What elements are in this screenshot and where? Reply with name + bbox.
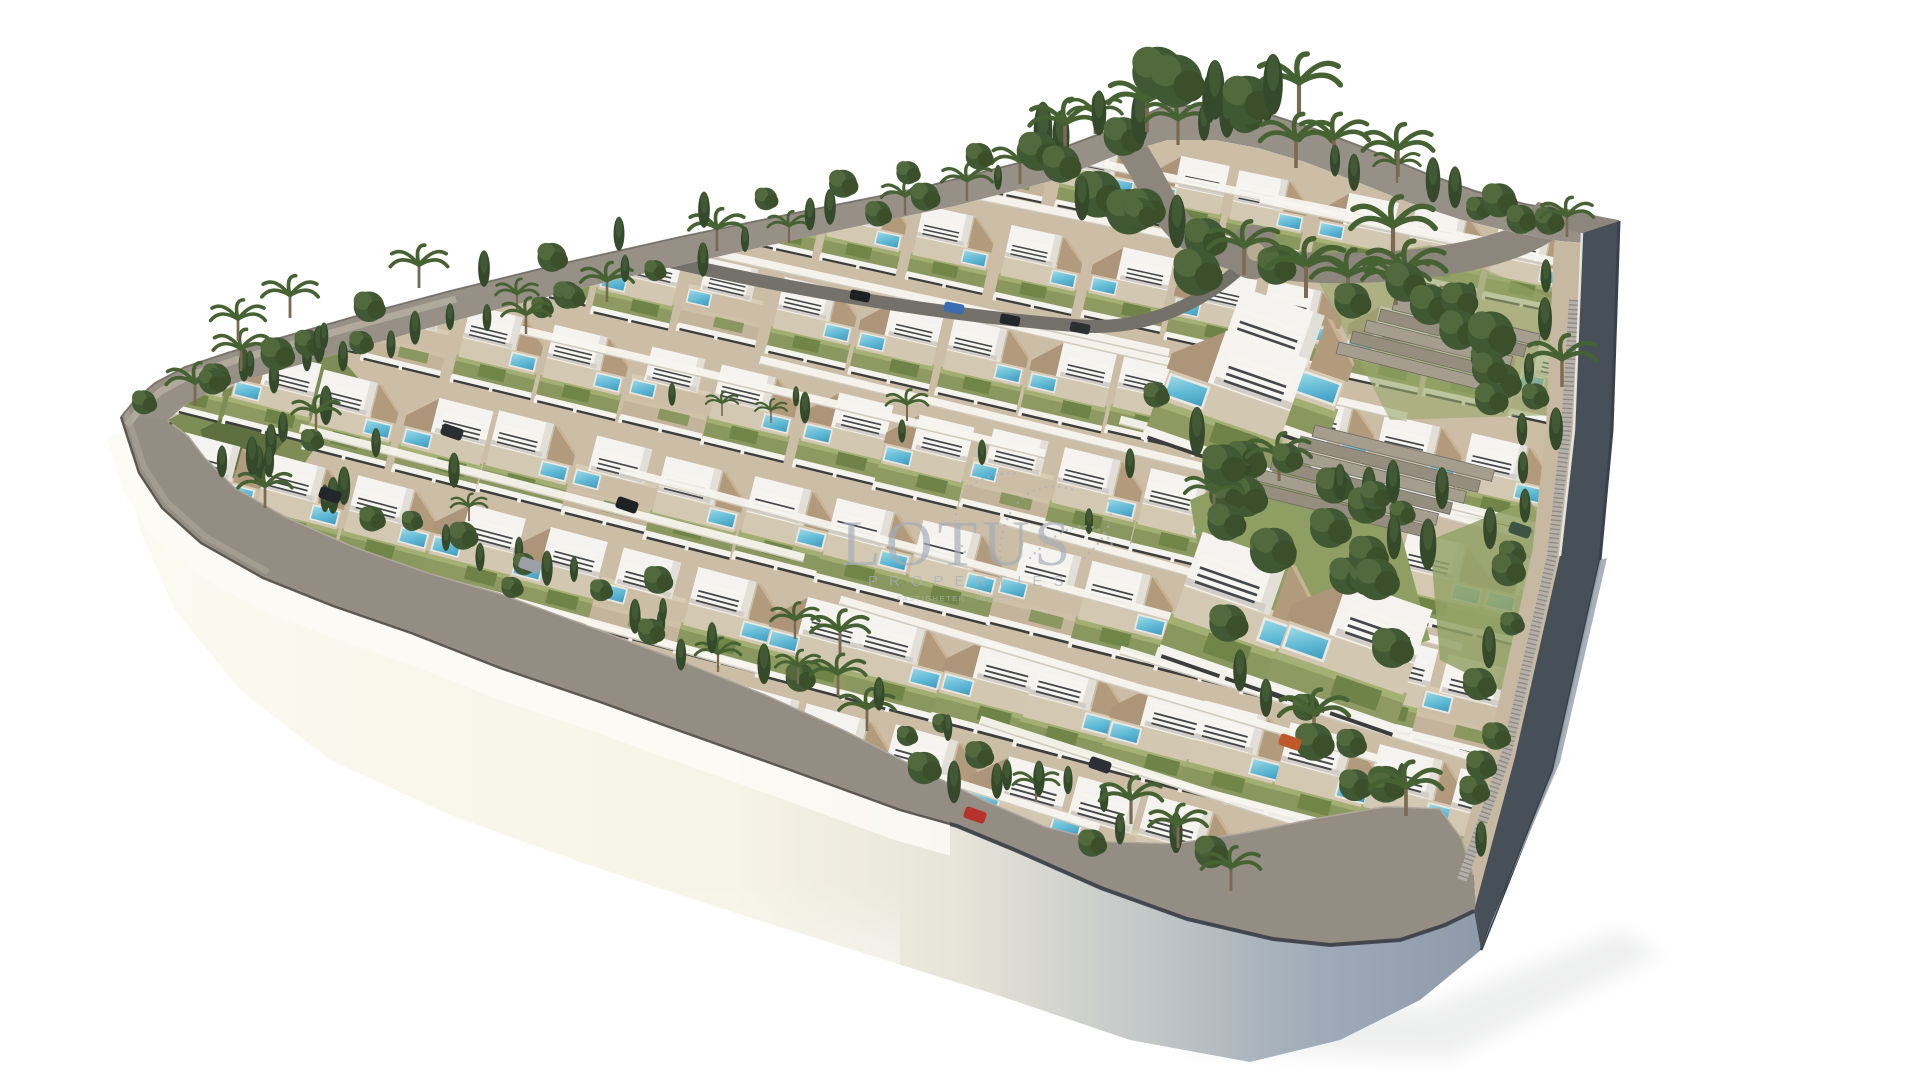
svg-text:LOTUS: LOTUS: [841, 508, 1075, 580]
svg-text:PROPERTIES: PROPERTIES: [868, 573, 1074, 590]
svg-text:FASTIGHETER : INVEST: FASTIGHETER : INVEST: [897, 594, 1012, 603]
